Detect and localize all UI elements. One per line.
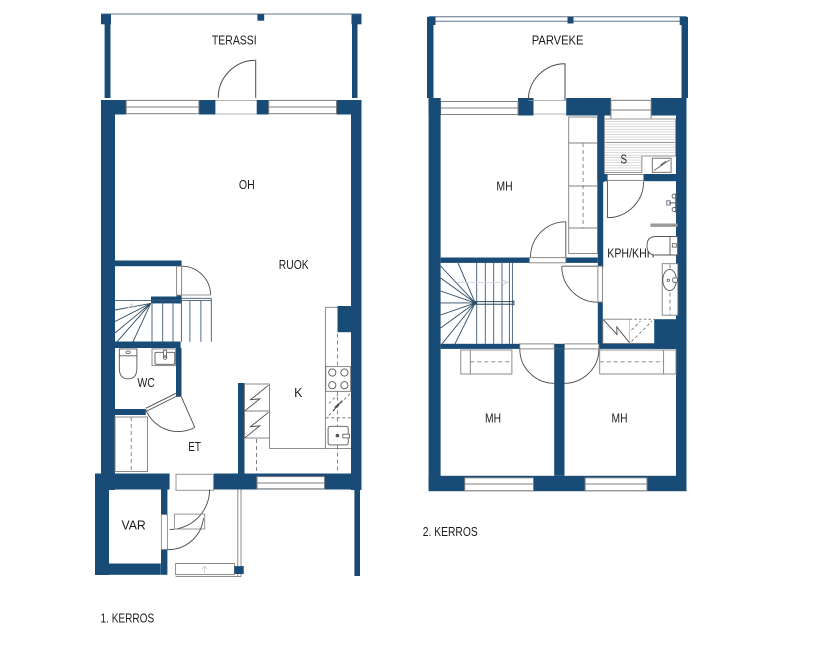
svg-text:1. KERROS: 1. KERROS bbox=[101, 612, 155, 626]
svg-text:WC: WC bbox=[137, 376, 155, 390]
svg-text:K: K bbox=[294, 386, 303, 400]
svg-text:OH: OH bbox=[239, 178, 255, 192]
svg-text:MH: MH bbox=[612, 412, 628, 426]
svg-text:S: S bbox=[621, 152, 628, 166]
svg-text:MH: MH bbox=[496, 179, 512, 193]
svg-text:VAR: VAR bbox=[121, 519, 145, 533]
svg-text:RUOK: RUOK bbox=[279, 258, 309, 272]
svg-text:MH: MH bbox=[485, 411, 501, 425]
svg-text:2. KERROS: 2. KERROS bbox=[423, 525, 478, 539]
svg-text:ET: ET bbox=[188, 440, 201, 454]
svg-text:TERASSI: TERASSI bbox=[212, 33, 257, 47]
svg-text:PARVEKE: PARVEKE bbox=[532, 33, 584, 47]
